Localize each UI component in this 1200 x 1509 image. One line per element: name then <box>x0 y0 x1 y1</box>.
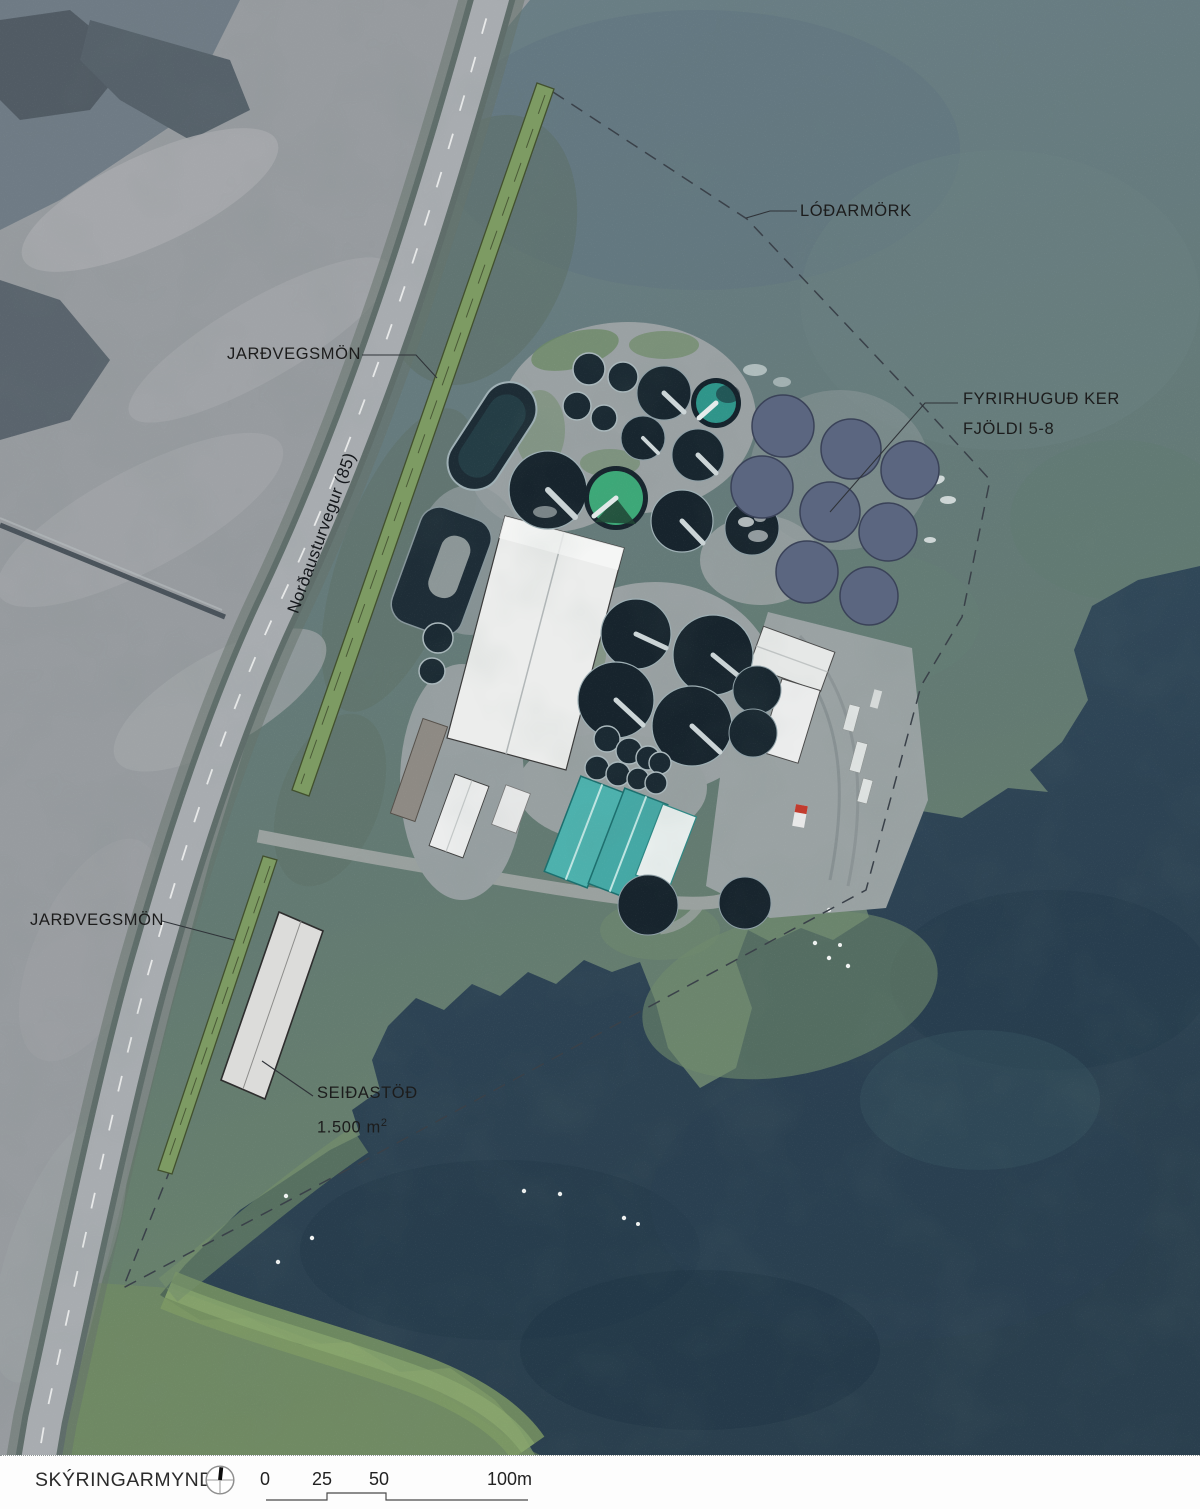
lot-boundary-label: LÓÐARMÖRK <box>800 201 912 221</box>
proposed-tank-circle <box>731 456 793 518</box>
aerial-photo-map <box>0 0 1200 1455</box>
terrain-mottle-texture <box>0 0 1200 1455</box>
proposed-tank-circle <box>881 441 939 499</box>
proposed-tank-circle <box>859 503 917 561</box>
smolt-station-area: 1.500 m2 <box>317 1113 418 1138</box>
proposed-tank-circle <box>776 541 838 603</box>
smolt-station-label: SEIÐASTÖÐ 1.500 m2 <box>317 1083 418 1138</box>
proposed-tanks-label: FYRIRHUGUÐ KER FJÖLDI 5-8 <box>963 389 1120 439</box>
proposed-tank-circle <box>840 567 898 625</box>
site-plan-screenshot: LÓÐARMÖRK JARÐVEGSMÖN Norðausturvegur (8… <box>0 0 1200 1509</box>
legend-bar: SKÝRINGARMYND 0 25 50 100m <box>0 1455 1200 1509</box>
proposed-tanks-label-line1: FYRIRHUGUÐ KER <box>963 390 1120 408</box>
soil-berm-label-top: JARÐVEGSMÖN <box>227 344 361 364</box>
smolt-station-area-value: 1.500 m <box>317 1119 381 1137</box>
scale-bar <box>0 1456 600 1509</box>
smolt-station-name: SEIÐASTÖÐ <box>317 1084 418 1102</box>
proposed-tanks-label-line2: FJÖLDI 5-8 <box>963 419 1120 439</box>
smolt-station-area-exponent: 2 <box>381 1117 388 1129</box>
soil-berm-label-bottom: JARÐVEGSMÖN <box>30 910 164 930</box>
proposed-tank-circle <box>821 419 881 479</box>
proposed-tank-circle <box>752 395 814 457</box>
